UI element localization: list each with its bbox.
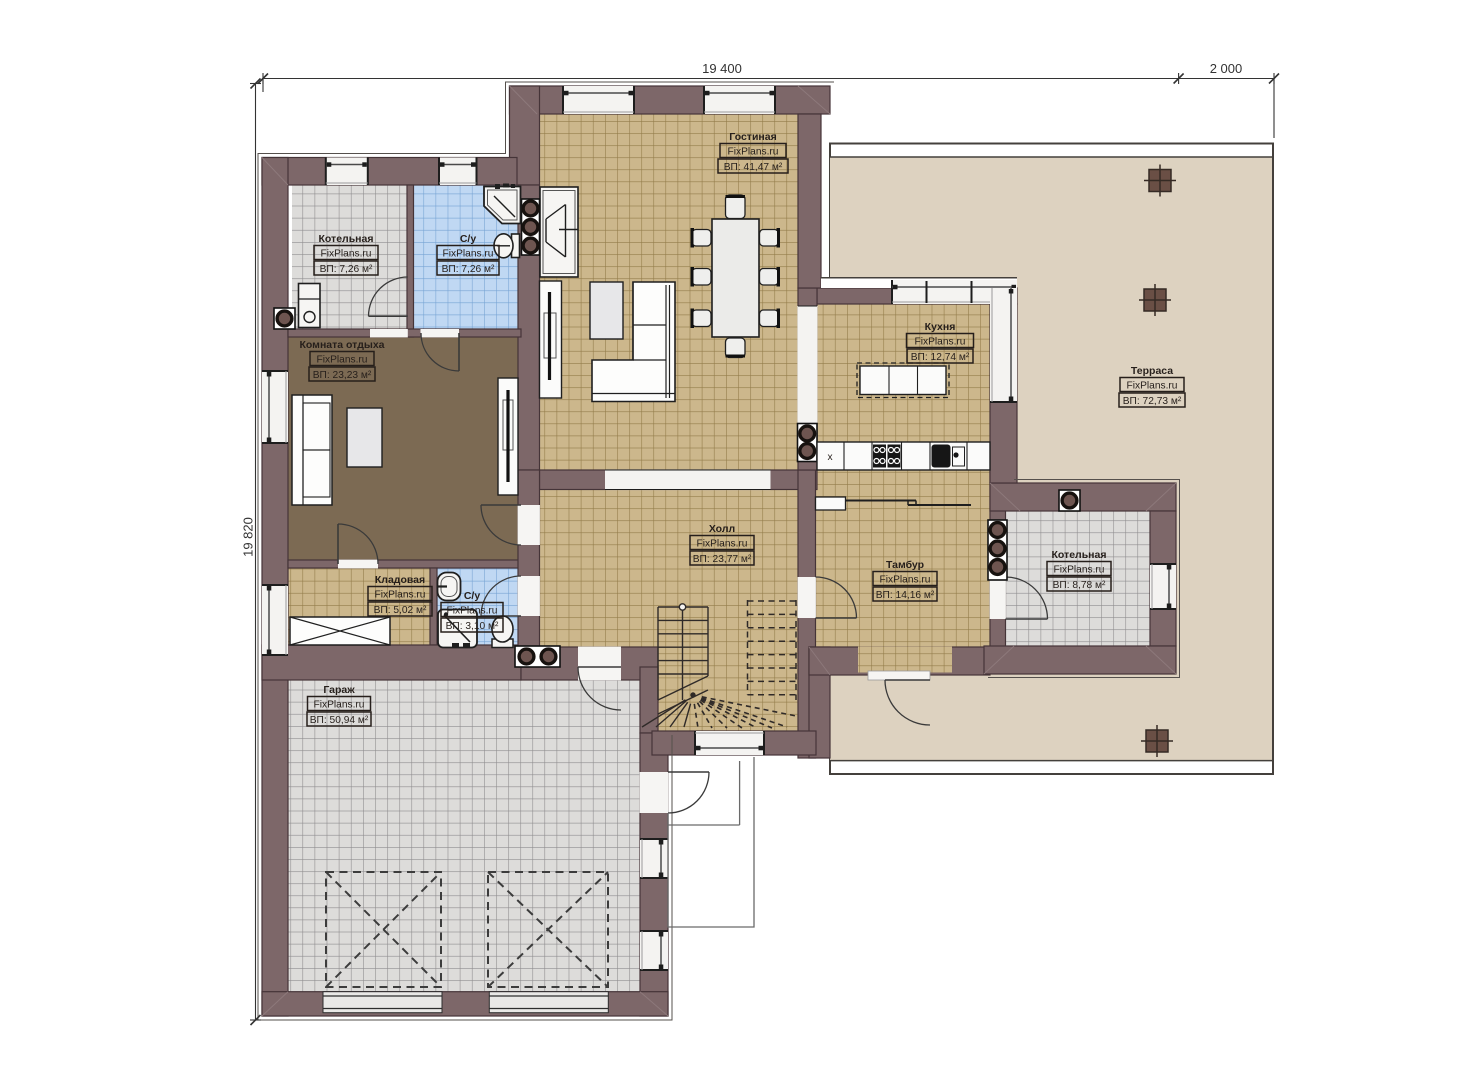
svg-text:ВП: 7,26 м²: ВП: 7,26 м² xyxy=(320,264,373,275)
svg-text:ВП: 23,23 м²: ВП: 23,23 м² xyxy=(313,370,372,381)
svg-text:Гостиная: Гостиная xyxy=(729,131,776,143)
svg-text:19 400: 19 400 xyxy=(702,61,742,76)
svg-text:ВП: 14,16 м²: ВП: 14,16 м² xyxy=(876,590,935,601)
svg-text:FixPlans.ru: FixPlans.ru xyxy=(728,147,779,158)
svg-text:Терраса: Терраса xyxy=(1131,365,1173,377)
svg-text:С/у: С/у xyxy=(464,590,481,602)
svg-text:ВП: 12,74 м²: ВП: 12,74 м² xyxy=(911,352,970,363)
svg-text:ВП: 72,73 м²: ВП: 72,73 м² xyxy=(1123,396,1182,407)
svg-text:С/у: С/у xyxy=(460,233,477,245)
svg-text:Холл: Холл xyxy=(709,523,735,535)
svg-text:FixPlans.ru: FixPlans.ru xyxy=(915,337,966,348)
svg-text:FixPlans.ru: FixPlans.ru xyxy=(375,590,426,601)
svg-text:2 000: 2 000 xyxy=(1210,61,1243,76)
svg-text:FixPlans.ru: FixPlans.ru xyxy=(321,249,372,260)
svg-text:x: x xyxy=(827,452,832,463)
svg-text:ВП: 7,26 м²: ВП: 7,26 м² xyxy=(442,264,495,275)
svg-text:Кладовая: Кладовая xyxy=(375,574,425,586)
svg-text:Котельная: Котельная xyxy=(1052,549,1107,561)
svg-text:ВП: 3,10 м²: ВП: 3,10 м² xyxy=(446,621,499,632)
svg-text:Тамбур: Тамбур xyxy=(886,559,924,571)
svg-text:FixPlans.ru: FixPlans.ru xyxy=(447,606,498,617)
svg-text:Комната отдыха: Комната отдыха xyxy=(300,339,385,351)
svg-text:ВП: 23,77 м²: ВП: 23,77 м² xyxy=(693,554,752,565)
svg-text:FixPlans.ru: FixPlans.ru xyxy=(314,700,365,711)
svg-text:ВП: 8,78 м²: ВП: 8,78 м² xyxy=(1053,580,1106,591)
svg-text:ВП: 50,94 м²: ВП: 50,94 м² xyxy=(310,715,369,726)
svg-text:ВП: 41,47 м²: ВП: 41,47 м² xyxy=(724,162,783,173)
svg-text:FixPlans.ru: FixPlans.ru xyxy=(880,575,931,586)
svg-text:FixPlans.ru: FixPlans.ru xyxy=(697,539,748,550)
svg-text:Кухня: Кухня xyxy=(925,321,956,333)
svg-text:Гараж: Гараж xyxy=(323,684,355,696)
svg-text:Котельная: Котельная xyxy=(319,233,374,245)
svg-text:FixPlans.ru: FixPlans.ru xyxy=(1054,565,1105,576)
svg-text:FixPlans.ru: FixPlans.ru xyxy=(317,355,368,366)
svg-text:ВП: 5,02 м²: ВП: 5,02 м² xyxy=(374,605,427,616)
svg-text:FixPlans.ru: FixPlans.ru xyxy=(1127,381,1178,392)
svg-text:FixPlans.ru: FixPlans.ru xyxy=(443,249,494,260)
svg-text:19 820: 19 820 xyxy=(241,517,256,557)
